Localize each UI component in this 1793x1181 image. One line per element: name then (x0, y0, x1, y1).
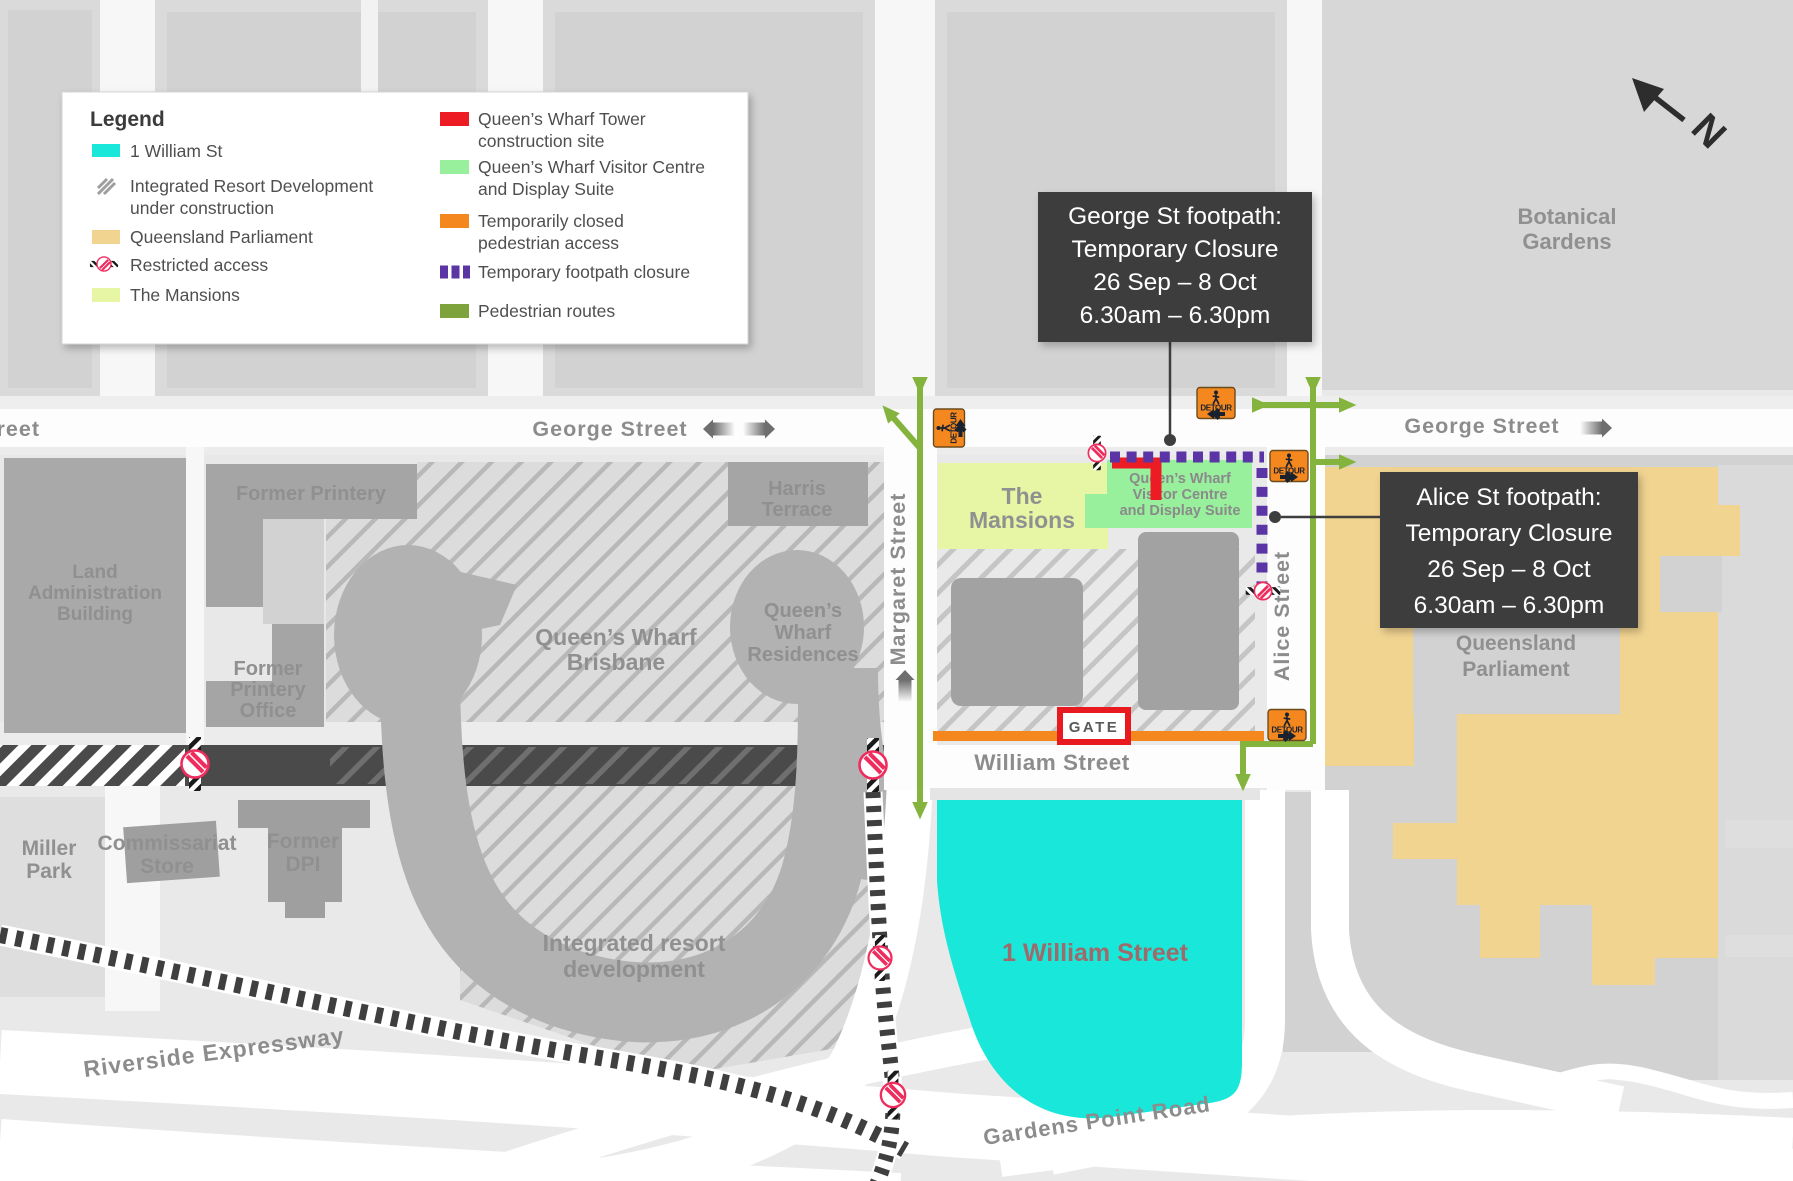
svg-text:and Display Suite: and Display Suite (1120, 503, 1241, 519)
svg-text:William Street: William Street (974, 750, 1130, 775)
svg-text:Mansions: Mansions (969, 507, 1075, 533)
svg-text:Terrace: Terrace (762, 499, 833, 521)
svg-text:Queen’s Wharf: Queen’s Wharf (535, 624, 697, 650)
svg-text:George St footpath:: George St footpath: (1068, 203, 1282, 230)
svg-text:Printery: Printery (230, 679, 306, 701)
svg-text:Parliament: Parliament (1462, 658, 1569, 681)
svg-text:Queensland Parliament: Queensland Parliament (130, 227, 313, 247)
svg-text:1 William St: 1 William St (130, 141, 223, 161)
svg-text:Park: Park (26, 860, 72, 883)
svg-text:Former: Former (234, 658, 303, 680)
svg-text:Integrated resort: Integrated resort (543, 930, 726, 956)
svg-text:Queensland: Queensland (1456, 632, 1576, 655)
svg-text:Residences: Residences (747, 644, 858, 666)
svg-text:The: The (1002, 483, 1043, 509)
svg-text:Integrated Resort Development: Integrated Resort Development (130, 176, 373, 196)
svg-text:under construction: under construction (130, 198, 274, 218)
svg-text:reet: reet (0, 417, 40, 441)
svg-text:George Street: George Street (1404, 414, 1559, 438)
svg-text:Botanical: Botanical (1517, 204, 1616, 229)
svg-text:Wharf: Wharf (775, 622, 832, 644)
svg-text:and Display Suite: and Display Suite (478, 179, 614, 199)
svg-text:Land: Land (72, 562, 117, 583)
svg-text:GATE: GATE (1069, 719, 1120, 736)
svg-text:Restricted access: Restricted access (130, 255, 268, 275)
svg-text:Temporary Closure: Temporary Closure (1406, 520, 1613, 547)
svg-text:development: development (563, 956, 705, 982)
svg-text:6.30am – 6.30pm: 6.30am – 6.30pm (1414, 592, 1605, 619)
svg-text:Temporary footpath closure: Temporary footpath closure (478, 262, 690, 282)
svg-text:Temporarily closed: Temporarily closed (478, 211, 624, 231)
svg-text:Office: Office (240, 700, 297, 722)
svg-text:DPI: DPI (285, 853, 320, 876)
svg-text:Miller: Miller (22, 837, 77, 860)
svg-text:6.30am – 6.30pm: 6.30am – 6.30pm (1080, 302, 1271, 329)
svg-text:26 Sep – 8 Oct: 26 Sep – 8 Oct (1093, 269, 1257, 296)
svg-text:Commissariat: Commissariat (98, 832, 237, 855)
svg-text:Gardens: Gardens (1522, 229, 1611, 254)
svg-text:pedestrian access: pedestrian access (478, 233, 619, 253)
svg-text:Legend: Legend (90, 108, 165, 131)
svg-text:Visitor Centre: Visitor Centre (1133, 487, 1228, 503)
svg-text:Pedestrian routes: Pedestrian routes (478, 301, 615, 321)
svg-text:1 William Street: 1 William Street (1002, 939, 1189, 967)
svg-text:26 Sep – 8 Oct: 26 Sep – 8 Oct (1427, 556, 1591, 583)
svg-text:Alice Street: Alice Street (1270, 551, 1294, 681)
svg-text:Store: Store (140, 855, 194, 878)
svg-text:George Street: George Street (532, 417, 687, 441)
svg-text:Queen’s: Queen’s (764, 600, 842, 622)
svg-text:Administration: Administration (28, 583, 162, 604)
svg-text:Queen’s Wharf: Queen’s Wharf (1129, 471, 1231, 487)
svg-text:Queen’s Wharf Visitor Centre: Queen’s Wharf Visitor Centre (478, 157, 705, 177)
svg-text:Alice St footpath:: Alice St footpath: (1416, 484, 1601, 511)
svg-text:construction site: construction site (478, 131, 604, 151)
svg-text:Former: Former (267, 830, 339, 853)
svg-text:Temporary Closure: Temporary Closure (1072, 236, 1279, 263)
svg-text:Harris: Harris (768, 478, 826, 500)
svg-text:The Mansions: The Mansions (130, 285, 240, 305)
svg-text:Building: Building (57, 604, 133, 625)
svg-text:Margaret Street: Margaret Street (886, 493, 910, 666)
svg-text:Queen’s Wharf Tower: Queen’s Wharf Tower (478, 109, 646, 129)
svg-text:Former Printery: Former Printery (236, 483, 387, 505)
svg-text:Brisbane: Brisbane (567, 649, 665, 675)
